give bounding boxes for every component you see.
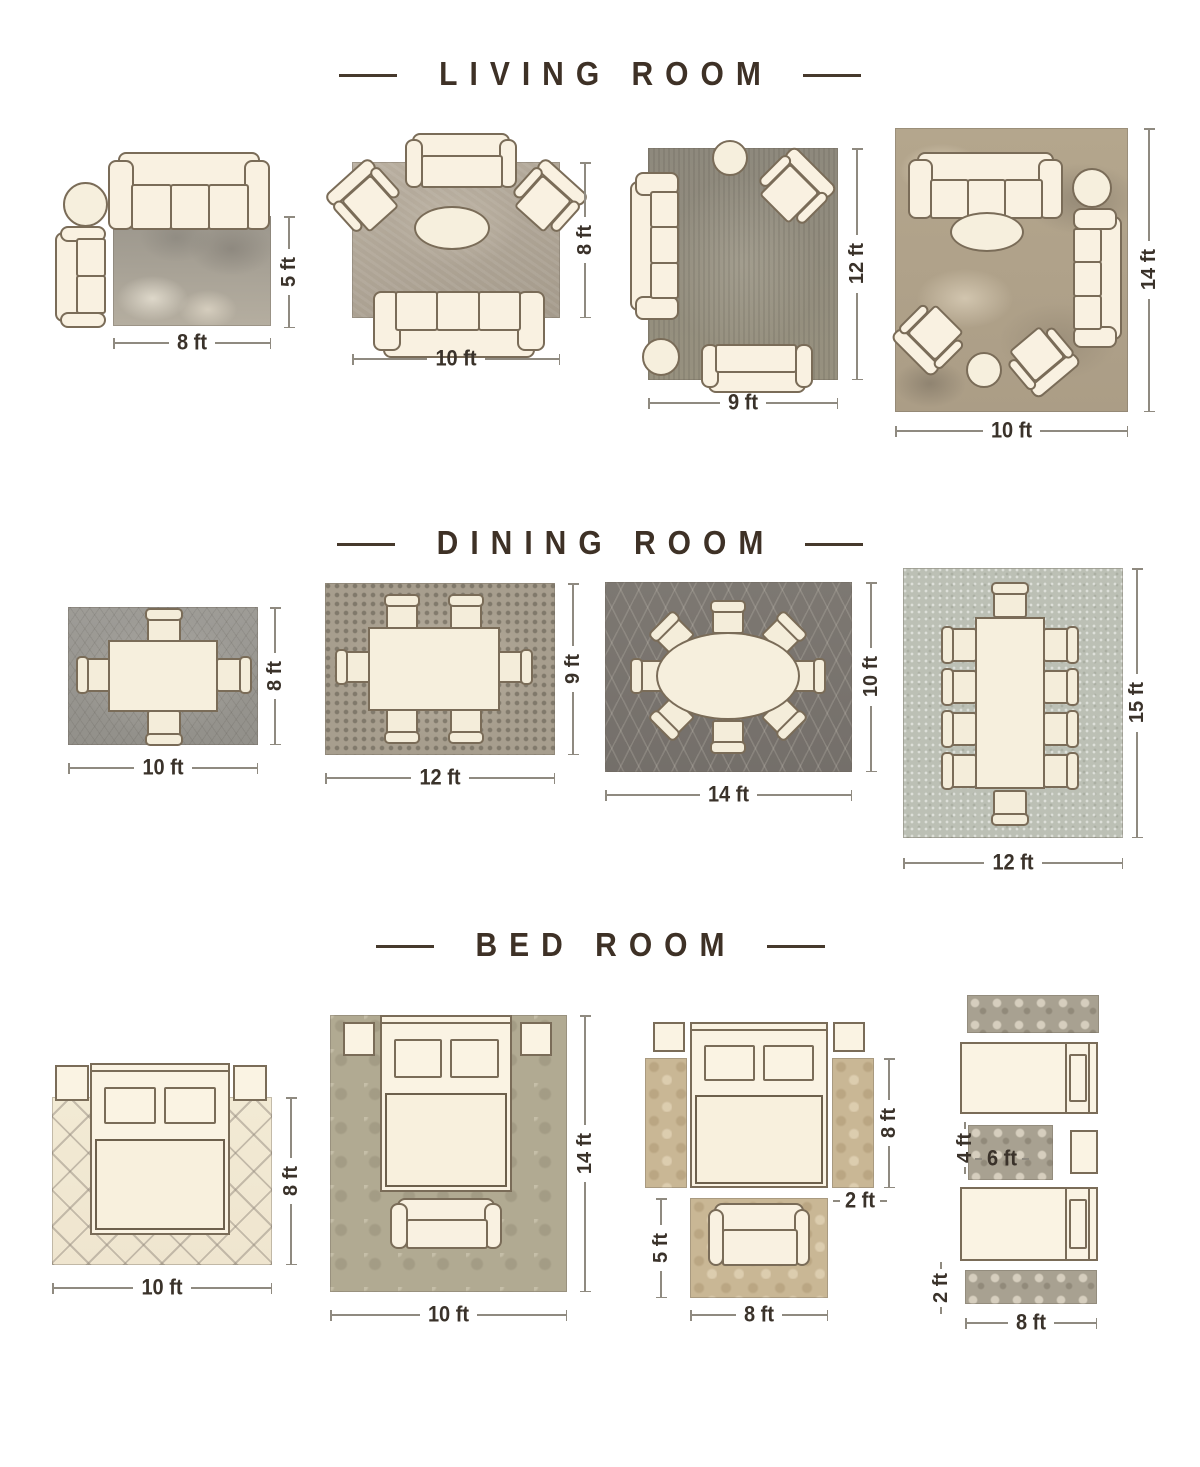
runner-rug-8x2 — [967, 995, 1099, 1033]
rug-width-dimension: 10 ft — [330, 1304, 567, 1326]
dining-chair-icon — [450, 708, 482, 738]
rug-height-dimension: 5 ft — [648, 1198, 674, 1298]
runner-rug-8x2 — [965, 1270, 1097, 1304]
runner-rug-2x8 — [645, 1058, 687, 1188]
sofa-3seat-icon — [1072, 208, 1122, 348]
oval-coffee-table-icon — [950, 212, 1024, 252]
runner-width-dimension: 2 ft — [833, 1190, 891, 1212]
bed-icon — [690, 1022, 828, 1188]
dining-room-title-text: DINING ROOM — [425, 525, 776, 563]
small-rug-width-dimension: 6 ft — [975, 1148, 1053, 1170]
runner-height-dimension: 8 ft — [876, 1058, 902, 1188]
dining-chair-icon — [341, 651, 371, 683]
dim-label: 8 ft — [574, 217, 597, 263]
rug-width-dimension: 8 ft — [113, 332, 271, 354]
dining-chair-icon — [1043, 628, 1073, 662]
sofa-3seat-icon — [630, 172, 680, 320]
bench-loveseat-icon — [390, 1198, 502, 1250]
twin-bed-icon — [960, 1187, 1098, 1261]
loveseat-icon — [701, 343, 813, 393]
dim-label: 14 ft — [1138, 241, 1161, 298]
rug-height-dimension: 15 ft — [1124, 568, 1150, 838]
title-dash-right — [805, 543, 863, 546]
dining-chair-icon — [1043, 754, 1073, 788]
dim-label: 5 ft — [278, 249, 301, 295]
dining-chair-icon — [712, 720, 744, 748]
dim-label: 8 ft — [169, 330, 215, 355]
dining-chair-icon — [993, 588, 1027, 618]
dim-label: 8 ft — [878, 1100, 901, 1146]
dim-label: 8 ft — [264, 653, 287, 699]
title-dash-right — [767, 945, 825, 948]
round-side-table-icon — [1072, 168, 1112, 208]
round-side-table-icon — [642, 338, 680, 376]
dim-label: 10 ft — [133, 1275, 190, 1300]
dining-chair-icon — [147, 710, 181, 740]
dining-chair-icon — [450, 600, 482, 630]
dining-chair-icon — [947, 754, 977, 788]
sofa-3seat-icon — [908, 152, 1063, 220]
living-room-title: LIVING ROOM — [0, 58, 1200, 92]
rug-size-guide-page: LIVING ROOM 5 ft 8 ft — [0, 0, 1200, 1467]
dining-chair-icon — [947, 670, 977, 704]
dining-table-icon — [975, 617, 1045, 789]
dim-label: 12 ft — [411, 765, 468, 790]
dim-label: 9 ft — [562, 646, 585, 692]
rug-8x5 — [113, 216, 271, 326]
rug-width-dimension: 10 ft — [68, 757, 258, 779]
runner-height-dimension: 2 ft — [928, 1262, 954, 1312]
nightstand-icon — [233, 1065, 267, 1101]
dining-chair-icon — [497, 651, 527, 683]
nightstand-icon — [343, 1022, 375, 1056]
rug-height-dimension: 14 ft — [572, 1015, 598, 1292]
runner-width-dimension: 8 ft — [965, 1312, 1097, 1334]
nightstand-icon — [833, 1022, 865, 1052]
rug-width-dimension: 12 ft — [325, 767, 555, 789]
rug-height-dimension: 10 ft — [858, 582, 884, 772]
rug-width-dimension: 10 ft — [52, 1277, 272, 1299]
dim-label: 12 ft — [846, 235, 869, 292]
loveseat-icon — [708, 1203, 810, 1267]
dim-label: 12 ft — [984, 850, 1041, 875]
loveseat-icon — [55, 226, 107, 328]
dim-label: 8 ft — [280, 1158, 303, 1204]
dining-chair-icon — [1043, 712, 1073, 746]
dim-label: 10 ft — [134, 755, 191, 780]
dim-label: 4 ft — [954, 1129, 977, 1167]
dim-label: 6 ft — [982, 1146, 1022, 1171]
dining-chair-icon — [216, 658, 246, 692]
runner-rug-2x8 — [832, 1058, 874, 1188]
dining-chair-icon — [386, 600, 418, 630]
rug-height-dimension: 8 ft — [572, 162, 598, 318]
dining-room-title: DINING ROOM — [0, 527, 1200, 561]
dim-label: 2 ft — [930, 1269, 953, 1307]
loveseat-icon — [405, 133, 517, 189]
dim-label: 9 ft — [720, 390, 766, 415]
dining-table-icon — [108, 640, 218, 712]
rug-width-dimension: 14 ft — [605, 784, 852, 806]
nightstand-icon — [1070, 1130, 1098, 1174]
dim-label: 2 ft — [840, 1188, 880, 1213]
dining-chair-icon — [712, 606, 744, 634]
nightstand-icon — [520, 1022, 552, 1056]
dim-label: 14 ft — [574, 1125, 597, 1182]
dining-chair-icon — [1043, 670, 1073, 704]
bed-icon — [90, 1063, 230, 1235]
rug-width-dimension: 10 ft — [895, 420, 1128, 442]
oval-dining-table-icon — [656, 632, 800, 720]
sofa-3seat-icon — [108, 152, 270, 232]
bed-icon — [380, 1015, 512, 1192]
title-dash-left — [337, 543, 395, 546]
dim-label: 8 ft — [1008, 1310, 1054, 1335]
dining-chair-icon — [386, 708, 418, 738]
rug-width-dimension: 8 ft — [690, 1304, 828, 1326]
living-room-title-text: LIVING ROOM — [427, 56, 773, 94]
bed-room-title-text: BED ROOM — [464, 927, 737, 965]
rug-width-dimension: 9 ft — [648, 392, 838, 414]
round-side-table-icon — [63, 182, 108, 227]
rug-height-dimension: 5 ft — [276, 216, 302, 328]
dim-label: 10 ft — [420, 1302, 477, 1327]
title-dash-left — [376, 945, 434, 948]
bed-room-title: BED ROOM — [0, 929, 1200, 963]
dim-label: 14 ft — [700, 782, 757, 807]
twin-bed-icon — [960, 1042, 1098, 1114]
rug-width-dimension: 10 ft — [352, 348, 560, 370]
dim-label: 10 ft — [860, 648, 883, 705]
dim-label: 10 ft — [427, 346, 484, 371]
rug-height-dimension: 12 ft — [844, 148, 870, 380]
rug-height-dimension: 8 ft — [278, 1097, 304, 1265]
dim-label: 8 ft — [736, 1302, 782, 1327]
dining-chair-icon — [947, 628, 977, 662]
round-side-table-icon — [966, 352, 1002, 388]
dim-label: 15 ft — [1126, 674, 1149, 731]
nightstand-icon — [653, 1022, 685, 1052]
nightstand-icon — [55, 1065, 89, 1101]
title-dash-right — [803, 74, 861, 77]
rug-height-dimension: 14 ft — [1136, 128, 1162, 412]
rug-width-dimension: 12 ft — [903, 852, 1123, 874]
dim-label: 10 ft — [983, 418, 1040, 443]
rug-height-dimension: 8 ft — [262, 607, 288, 745]
dim-label: 5 ft — [650, 1225, 673, 1271]
oval-coffee-table-icon — [414, 206, 490, 250]
round-side-table-icon — [712, 140, 748, 176]
dining-chair-icon — [947, 712, 977, 746]
dining-table-icon — [368, 627, 500, 711]
title-dash-left — [339, 74, 397, 77]
rug-height-dimension: 9 ft — [560, 583, 586, 755]
dining-chair-icon — [993, 790, 1027, 820]
